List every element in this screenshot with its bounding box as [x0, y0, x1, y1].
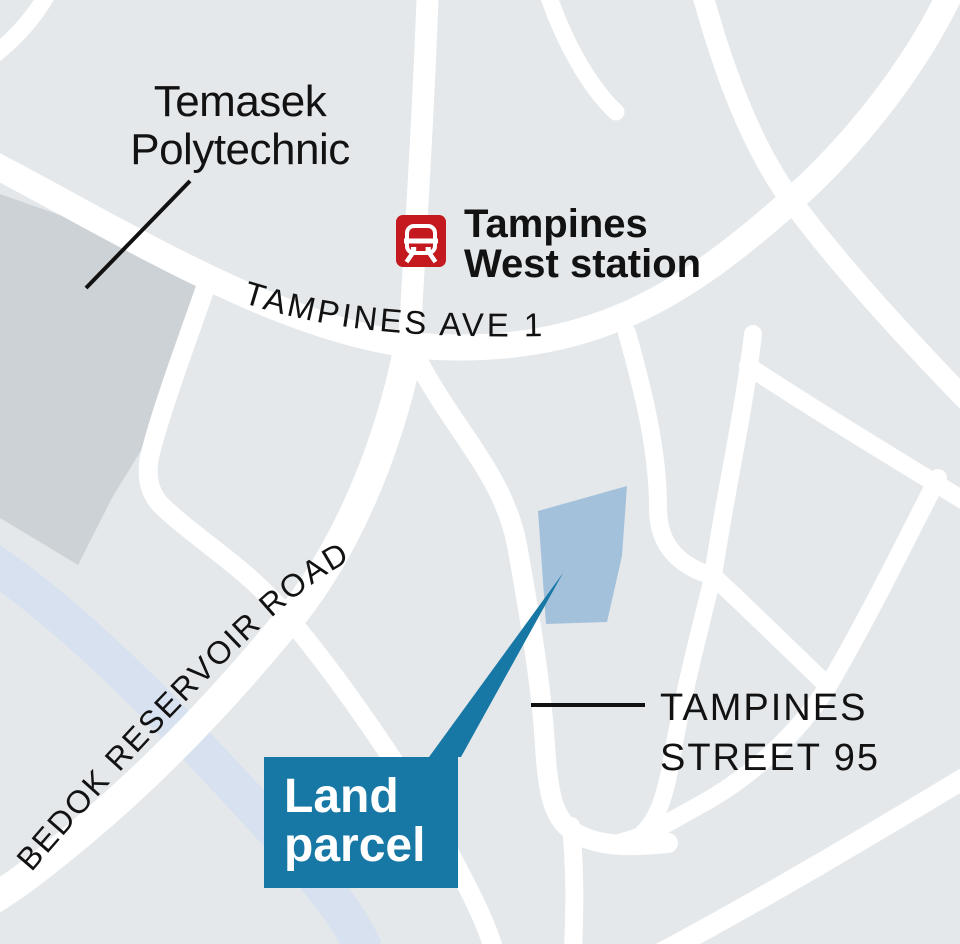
street95-label-line1: TAMPINES	[660, 687, 867, 729]
campus-label-line2: Polytechnic	[130, 125, 350, 174]
map-canvas: Land parcel Temasek Polytechnic Tampines…	[0, 0, 960, 944]
road-bottom-stub	[571, 826, 574, 944]
map-figure: Land parcel Temasek Polytechnic Tampines…	[0, 0, 960, 944]
station-label-line2: West station	[464, 242, 701, 286]
train-light-right	[426, 247, 431, 252]
callout-label-line2: parcel	[284, 819, 425, 872]
campus-label-line1: Temasek	[154, 77, 328, 126]
train-window-band	[404, 239, 438, 244]
train-light-left	[411, 247, 416, 252]
street95-label-line2: STREET 95	[660, 737, 880, 779]
station-label-line1: Tampines	[464, 202, 648, 246]
callout-label-line1: Land	[284, 770, 399, 823]
mrt-train-icon	[396, 215, 446, 267]
